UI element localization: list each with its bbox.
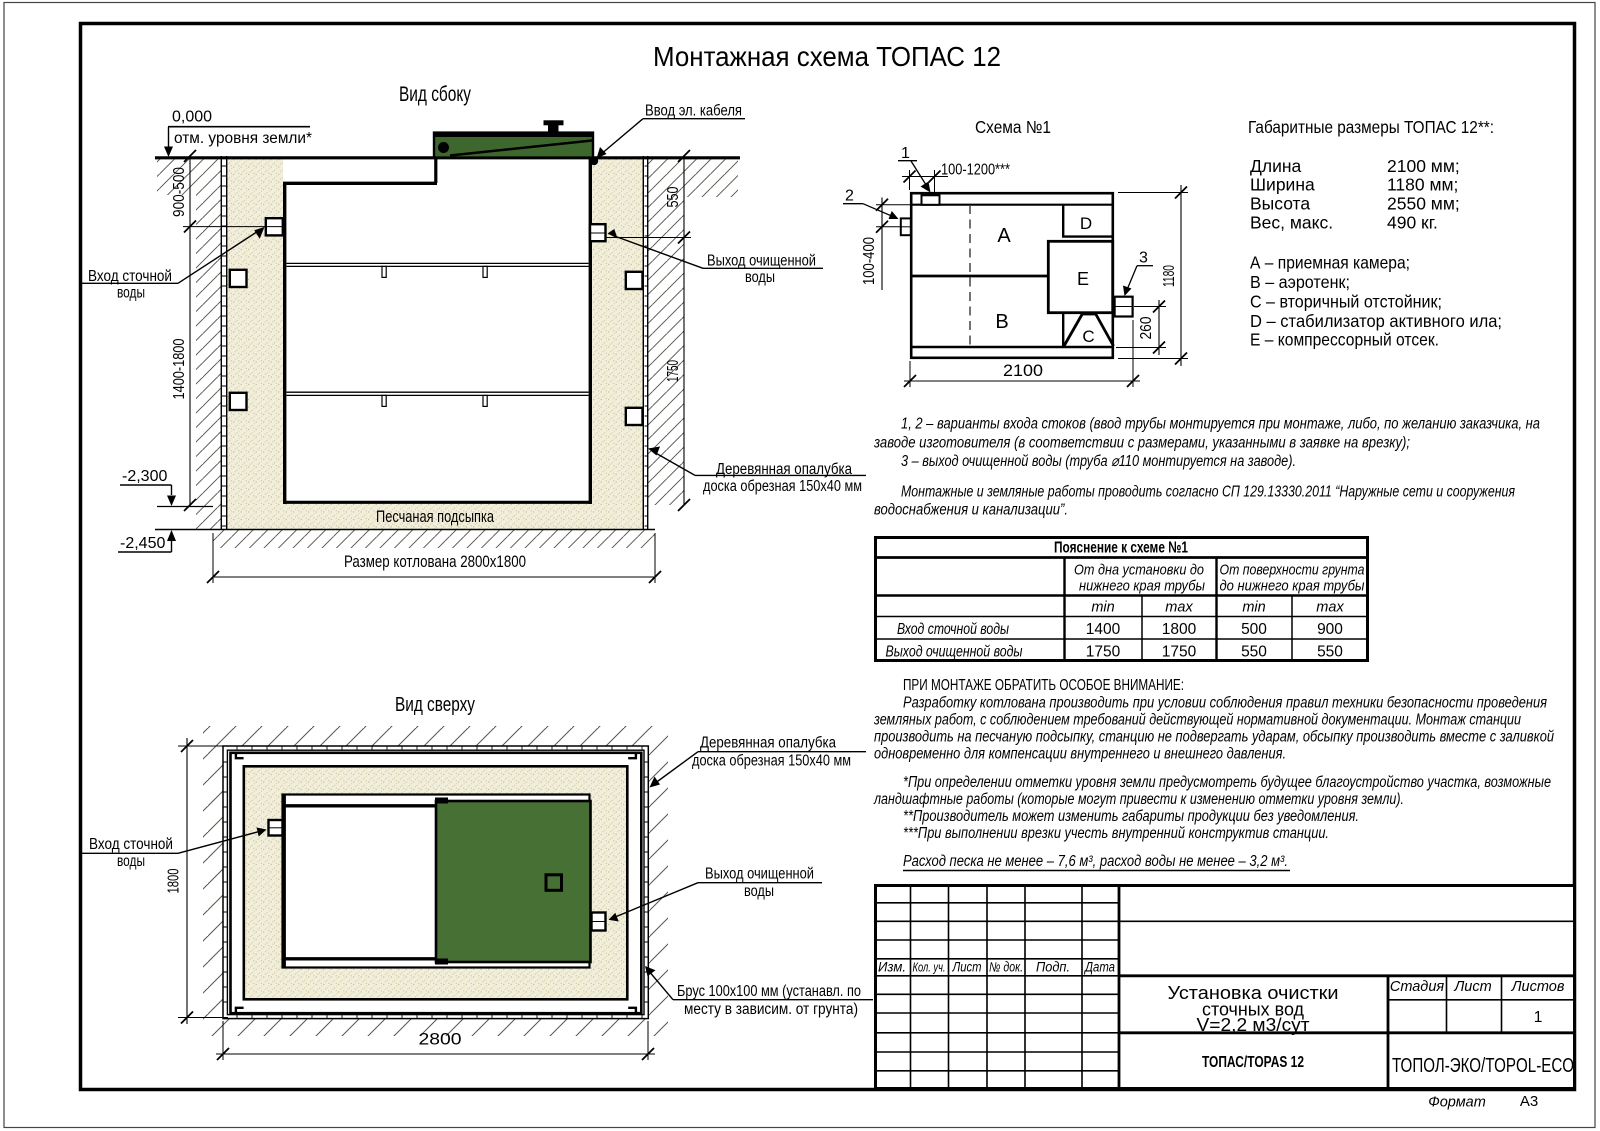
svg-text:2100 мм;: 2100 мм; — [1387, 156, 1460, 176]
svg-text:ПРИ МОНТАЖЕ ОБРАТИТЬ ОСОБОЕ ВН: ПРИ МОНТАЖЕ ОБРАТИТЬ ОСОБОЕ ВНИМАНИЕ: — [903, 677, 1184, 694]
svg-text:C: C — [1082, 327, 1094, 346]
svg-text:Разработку котлована производи: Разработку котлована производить при усл… — [903, 695, 1547, 712]
svg-text:В – аэротенк;: В – аэротенк; — [1250, 272, 1350, 292]
svg-text:заводе изготовителя (в соответ: заводе изготовителя (в соответствии с ра… — [873, 435, 1410, 452]
svg-text:100-1200***: 100-1200*** — [941, 162, 1010, 179]
svg-text:земляных работ, с соблюдением: земляных работ, с соблюдением требований… — [873, 712, 1521, 729]
svg-text:Вход сточной воды: Вход сточной воды — [897, 621, 1009, 638]
svg-text:Длина: Длина — [1250, 156, 1302, 176]
svg-text:Деревянная опалубка: Деревянная опалубка — [700, 735, 836, 752]
svg-text:2550 мм;: 2550 мм; — [1387, 194, 1460, 214]
svg-text:1, 2 – варианты входа стоков: 1, 2 – варианты входа стоков (ввод трубы… — [901, 416, 1540, 433]
svg-text:Вид сверху: Вид сверху — [395, 694, 475, 716]
svg-text:Ширина: Ширина — [1250, 175, 1315, 195]
svg-text:доска обрезная 150х40 мм: доска обрезная 150х40 мм — [703, 478, 862, 495]
svg-text:Дата: Дата — [1083, 960, 1115, 975]
svg-text:D: D — [1080, 214, 1092, 233]
svg-text:Расход песка не менее – 7,6 м³: Расход песка не менее – 7,6 м³, расход в… — [903, 853, 1288, 870]
svg-text:Размер котлована 2800х1800: Размер котлована 2800х1800 — [344, 552, 526, 571]
svg-text:B: B — [995, 311, 1008, 333]
svg-text:воды: воды — [744, 883, 774, 900]
svg-text:490 кг.: 490 кг. — [1387, 213, 1438, 233]
svg-text:550: 550 — [1241, 644, 1267, 661]
svg-text:Вес, макс.: Вес, макс. — [1250, 213, 1333, 233]
svg-text:Кол. уч.: Кол. уч. — [913, 961, 946, 975]
svg-text:-2,300: -2,300 — [122, 468, 167, 485]
svg-text:1400: 1400 — [1086, 621, 1121, 638]
svg-text:Монтажные и земляные работы пр: Монтажные и земляные работы проводить со… — [901, 484, 1515, 501]
svg-text:Габаритные размеры ТОПАС 12**:: Габаритные размеры ТОПАС 12**: — [1248, 117, 1494, 137]
svg-text:500: 500 — [1241, 621, 1267, 638]
svg-text:Выход очищенной воды: Выход очищенной воды — [886, 644, 1023, 661]
svg-text:Выход очищенной: Выход очищенной — [705, 866, 814, 883]
svg-text:2100: 2100 — [1003, 362, 1043, 380]
svg-text:нижнего края трубы: нижнего края трубы — [1079, 579, 1205, 595]
svg-text:Формат: Формат — [1428, 1095, 1486, 1111]
svg-text:От поверхности грунта: От поверхности грунта — [1220, 563, 1365, 579]
svg-text:2: 2 — [845, 188, 854, 205]
svg-text:*При определении отметки уровн: *При определении отметки уровня земли пр… — [903, 774, 1551, 791]
svg-text:0,000: 0,000 — [172, 109, 212, 126]
svg-text:отм. уровня земли*: отм. уровня земли* — [174, 130, 312, 147]
svg-text:2800: 2800 — [419, 1030, 462, 1049]
svg-text:1800: 1800 — [1162, 621, 1197, 638]
svg-text:3: 3 — [1139, 250, 1148, 267]
svg-text:max: max — [1165, 600, 1193, 616]
svg-text:А – приемная камера;: А – приемная камера; — [1250, 253, 1410, 273]
svg-text:1: 1 — [1534, 1009, 1543, 1026]
svg-text:100-400: 100-400 — [861, 237, 878, 285]
svg-text:A: A — [997, 225, 1011, 247]
svg-text:Подп.: Подп. — [1036, 960, 1070, 975]
svg-text:Е – компрессорный отсек.: Е – компрессорный отсек. — [1250, 330, 1439, 350]
svg-text:E: E — [1077, 269, 1089, 289]
svg-text:3 – выход очищенной воды (труб: 3 – выход очищенной воды (труба ⌀110 мон… — [901, 453, 1296, 470]
svg-text:-2,450: -2,450 — [120, 535, 165, 552]
svg-text:Лист: Лист — [1453, 979, 1491, 995]
svg-text:водоснабжения и канализации”.: водоснабжения и канализации”. — [874, 502, 1068, 519]
svg-text:С – вторичный отстойник;: С – вторичный отстойник; — [1250, 292, 1442, 312]
svg-text:min: min — [1091, 600, 1114, 616]
svg-text:ТОПОЛ-ЭКО/TOPOL-ECO: ТОПОЛ-ЭКО/TOPOL-ECO — [1392, 1054, 1574, 1077]
svg-text:Ввод эл. кабеля: Ввод эл. кабеля — [645, 103, 742, 120]
svg-text:Пояснение к схеме №1: Пояснение к схеме №1 — [1054, 540, 1188, 557]
svg-text:воды: воды — [117, 285, 145, 302]
svg-text:Песчаная подсыпка: Песчаная подсыпка — [376, 507, 494, 526]
svg-text:***При выполнении врезки учест: ***При выполнении врезки учесть внутренн… — [903, 825, 1329, 842]
svg-text:Изм.: Изм. — [878, 960, 906, 975]
svg-text:Брус 100х100 мм (устанавл. по: Брус 100х100 мм (устанавл. по — [677, 983, 861, 1000]
svg-text:260: 260 — [1138, 316, 1155, 339]
svg-text:Вход сточной: Вход сточной — [88, 268, 172, 285]
svg-text:Выход очищенной: Выход очищенной — [707, 253, 816, 270]
svg-text:От дна установки до: От дна установки до — [1074, 563, 1204, 579]
svg-text:1750: 1750 — [1162, 644, 1197, 661]
svg-text:Вход сточной: Вход сточной — [89, 836, 173, 853]
svg-text:D – стабилизатор активного ила: D – стабилизатор активного ила; — [1250, 311, 1502, 331]
svg-text:доска обрезная 150х40 мм: доска обрезная 150х40 мм — [692, 753, 851, 770]
svg-text:Стадия: Стадия — [1390, 979, 1445, 995]
svg-text:1750: 1750 — [1086, 644, 1121, 661]
svg-text:900: 900 — [1317, 621, 1343, 638]
svg-text:воды: воды — [745, 269, 775, 286]
svg-text:ТОПАС/TOPAS 12: ТОПАС/TOPAS 12 — [1202, 1054, 1304, 1071]
svg-text:Схема №1: Схема №1 — [975, 117, 1051, 137]
svg-text:№ док.: № док. — [989, 960, 1023, 975]
svg-text:1800: 1800 — [166, 868, 183, 893]
svg-text:Высота: Высота — [1250, 194, 1310, 214]
svg-text:max: max — [1316, 600, 1344, 616]
svg-text:Вид сбоку: Вид сбоку — [399, 83, 471, 106]
svg-text:550: 550 — [665, 186, 682, 207]
svg-text:V=2,2 м3/сут: V=2,2 м3/сут — [1197, 1014, 1311, 1035]
svg-text:А3: А3 — [1520, 1093, 1538, 1110]
svg-text:550: 550 — [1317, 644, 1343, 661]
svg-text:ландшафтные работы (которые мо: ландшафтные работы (которые могут привес… — [873, 791, 1404, 808]
svg-text:месту в зависим. от грунта): месту в зависим. от грунта) — [684, 1001, 858, 1018]
svg-text:Листов: Листов — [1511, 979, 1565, 995]
svg-text:900-500: 900-500 — [171, 167, 188, 217]
svg-text:Лист: Лист — [952, 960, 982, 975]
svg-text:до нижнего края трубы: до нижнего края трубы — [1220, 579, 1365, 595]
svg-text:Монтажная схема ТОПАС 12: Монтажная схема ТОПАС 12 — [653, 41, 1001, 72]
svg-text:1180 мм;: 1180 мм; — [1387, 175, 1458, 195]
svg-text:одновременно для компенсации в: одновременно для компенсации внутреннего… — [874, 746, 1286, 763]
svg-text:производить на песчаную подсып: производить на песчаную подсыпку, станци… — [874, 729, 1554, 746]
svg-text:1750: 1750 — [665, 360, 682, 382]
svg-text:min: min — [1242, 600, 1265, 616]
svg-text:**Производитель может изменить: **Производитель может изменить габариты … — [903, 808, 1359, 825]
svg-text:1180: 1180 — [1161, 265, 1178, 287]
svg-text:1400-1800: 1400-1800 — [171, 338, 188, 399]
svg-text:1: 1 — [901, 145, 910, 162]
svg-text:воды: воды — [117, 853, 145, 870]
